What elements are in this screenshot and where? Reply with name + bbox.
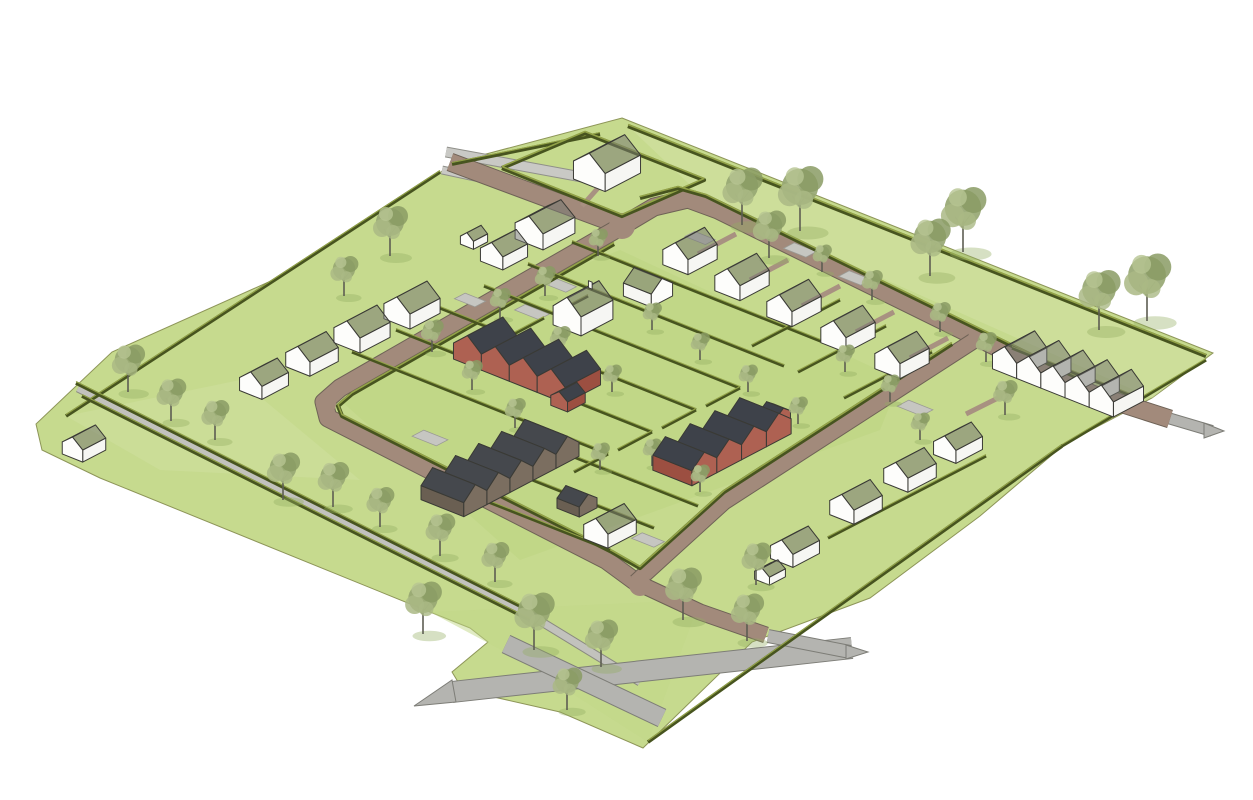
tree-canopy xyxy=(884,375,892,383)
site-plan-rendering xyxy=(0,0,1253,800)
tree-shadow xyxy=(487,580,513,588)
scene-canvas xyxy=(0,0,1253,800)
tree-shadow xyxy=(998,414,1020,421)
tree-canopy xyxy=(273,453,286,466)
road-junction xyxy=(629,574,651,596)
tree-shadow xyxy=(866,299,885,305)
tree-canopy xyxy=(470,371,478,379)
tree-canopy xyxy=(425,320,434,329)
tree-canopy xyxy=(597,638,610,651)
tree-shadow xyxy=(523,646,560,658)
road-tip xyxy=(846,645,868,659)
tree-canopy xyxy=(594,443,602,451)
tree-canopy xyxy=(508,399,516,407)
tree-shadow xyxy=(324,505,353,514)
tree-canopy xyxy=(742,365,750,373)
chimney xyxy=(588,281,592,289)
tree-canopy xyxy=(997,381,1007,391)
road-tip xyxy=(414,680,456,706)
tree-canopy xyxy=(492,557,503,568)
tree-canopy xyxy=(650,313,658,321)
tree-shadow xyxy=(695,359,713,365)
tree-canopy xyxy=(341,271,352,282)
tree-canopy xyxy=(162,379,174,391)
tree-canopy xyxy=(698,475,706,483)
tree-shadow xyxy=(919,272,956,284)
tree-shadow xyxy=(673,617,707,628)
tree-canopy xyxy=(746,375,754,383)
tree-shadow xyxy=(793,423,811,429)
tree-shadow xyxy=(950,248,992,261)
tree-shadow xyxy=(885,401,903,407)
tree-canopy xyxy=(591,620,604,633)
tree-canopy xyxy=(979,333,987,341)
tree-shadow xyxy=(413,631,447,642)
tree-shadow xyxy=(695,491,713,497)
tree-canopy xyxy=(493,289,501,297)
tree-shadow xyxy=(274,497,304,507)
tree-shadow xyxy=(372,525,398,533)
tree-canopy xyxy=(598,453,606,461)
tree-shadow xyxy=(934,331,953,337)
tree-canopy xyxy=(279,471,292,484)
tree-canopy xyxy=(796,407,804,415)
tree-canopy xyxy=(914,413,922,421)
tree-shadow xyxy=(787,227,829,240)
tree-canopy xyxy=(925,240,941,256)
tree-shadow xyxy=(915,439,933,445)
tree-canopy xyxy=(743,612,756,625)
tree-canopy xyxy=(753,559,765,571)
tree-shadow xyxy=(207,438,233,446)
tree-canopy xyxy=(419,601,434,616)
tree-canopy xyxy=(759,211,772,224)
tree-canopy xyxy=(498,299,506,307)
tree-shadow xyxy=(559,708,586,717)
ground-layer xyxy=(36,118,1213,748)
tree-canopy xyxy=(553,327,561,335)
tree xyxy=(1124,254,1177,330)
tree-canopy xyxy=(694,465,702,473)
tree-canopy xyxy=(949,188,967,206)
tree-canopy xyxy=(558,668,570,680)
tree-shadow xyxy=(592,664,622,674)
tree-canopy xyxy=(765,229,778,242)
tree-shadow xyxy=(647,329,665,335)
tree-canopy xyxy=(371,488,382,499)
tree-canopy xyxy=(958,212,976,230)
tree-canopy xyxy=(747,543,759,555)
tree-canopy xyxy=(377,502,388,513)
tree-canopy xyxy=(984,343,992,351)
tree-canopy xyxy=(816,245,824,253)
tree-shadow xyxy=(539,295,558,301)
tree-canopy xyxy=(679,587,694,602)
tree-canopy xyxy=(1142,279,1161,298)
tree-canopy xyxy=(870,281,878,289)
tree-shadow xyxy=(1087,326,1125,338)
tree-canopy xyxy=(610,375,618,383)
tree-canopy xyxy=(168,395,180,407)
tree-canopy xyxy=(795,191,813,209)
tree-canopy xyxy=(212,415,223,426)
tree-canopy xyxy=(671,569,686,584)
tree-canopy xyxy=(596,239,604,247)
tree-shadow xyxy=(380,253,412,263)
tree-shadow xyxy=(593,255,611,261)
tree-canopy xyxy=(329,479,342,492)
tree-canopy xyxy=(592,229,600,237)
tree-canopy xyxy=(465,361,473,369)
tree-canopy xyxy=(694,333,702,341)
tree-canopy xyxy=(729,169,745,185)
tree-canopy xyxy=(843,355,851,363)
tree-canopy xyxy=(118,345,131,358)
tree-canopy xyxy=(486,543,497,554)
tree-canopy xyxy=(521,594,537,610)
tree-shadow xyxy=(817,271,835,277)
tree-canopy xyxy=(792,397,800,405)
tree-canopy xyxy=(1132,255,1151,274)
tree-shadow xyxy=(743,391,761,397)
tree-shadow xyxy=(119,389,149,399)
tree-canopy xyxy=(431,514,443,526)
tree-canopy xyxy=(917,220,933,236)
tree-canopy xyxy=(1094,293,1111,310)
tree-canopy xyxy=(513,409,521,417)
tree-canopy xyxy=(820,255,828,263)
tree-canopy xyxy=(1002,393,1012,403)
tree-canopy xyxy=(206,401,217,412)
tree-canopy xyxy=(543,277,551,285)
tree-shadow xyxy=(840,371,858,377)
tree-canopy xyxy=(538,267,546,275)
tree-canopy xyxy=(335,257,346,268)
tree-canopy xyxy=(429,332,438,341)
tree-canopy xyxy=(698,343,706,351)
tree-canopy xyxy=(646,303,654,311)
tree-canopy xyxy=(411,583,426,598)
tree-shadow xyxy=(748,583,775,592)
tree-canopy xyxy=(646,439,654,447)
tree-canopy xyxy=(737,189,753,205)
tree-shadow xyxy=(738,638,768,648)
tree-canopy xyxy=(737,594,750,607)
tree-canopy xyxy=(888,385,896,393)
tree-canopy xyxy=(437,530,449,542)
road-junction xyxy=(316,394,336,414)
tree-canopy xyxy=(379,207,393,221)
tree-shadow xyxy=(595,469,613,475)
tree-canopy xyxy=(839,345,847,353)
tree-canopy xyxy=(933,303,941,311)
tree-shadow xyxy=(432,554,459,563)
tree-canopy xyxy=(786,167,804,185)
tree-canopy xyxy=(918,423,926,431)
tree-canopy xyxy=(1086,271,1103,288)
tree-canopy xyxy=(938,313,946,321)
tree-shadow xyxy=(336,294,362,302)
tree-canopy xyxy=(323,463,336,476)
tree-canopy xyxy=(606,365,614,373)
tree-shadow xyxy=(607,391,625,397)
tree-canopy xyxy=(564,684,576,696)
road-tip xyxy=(1204,423,1224,438)
tree-shadow xyxy=(1134,316,1177,330)
tree-shadow xyxy=(466,389,485,395)
tree-canopy xyxy=(386,225,400,239)
tree-canopy xyxy=(865,271,873,279)
tree-canopy xyxy=(529,614,545,630)
tree-shadow xyxy=(426,351,447,358)
tree-canopy xyxy=(124,363,137,376)
tree-shadow xyxy=(163,419,190,428)
